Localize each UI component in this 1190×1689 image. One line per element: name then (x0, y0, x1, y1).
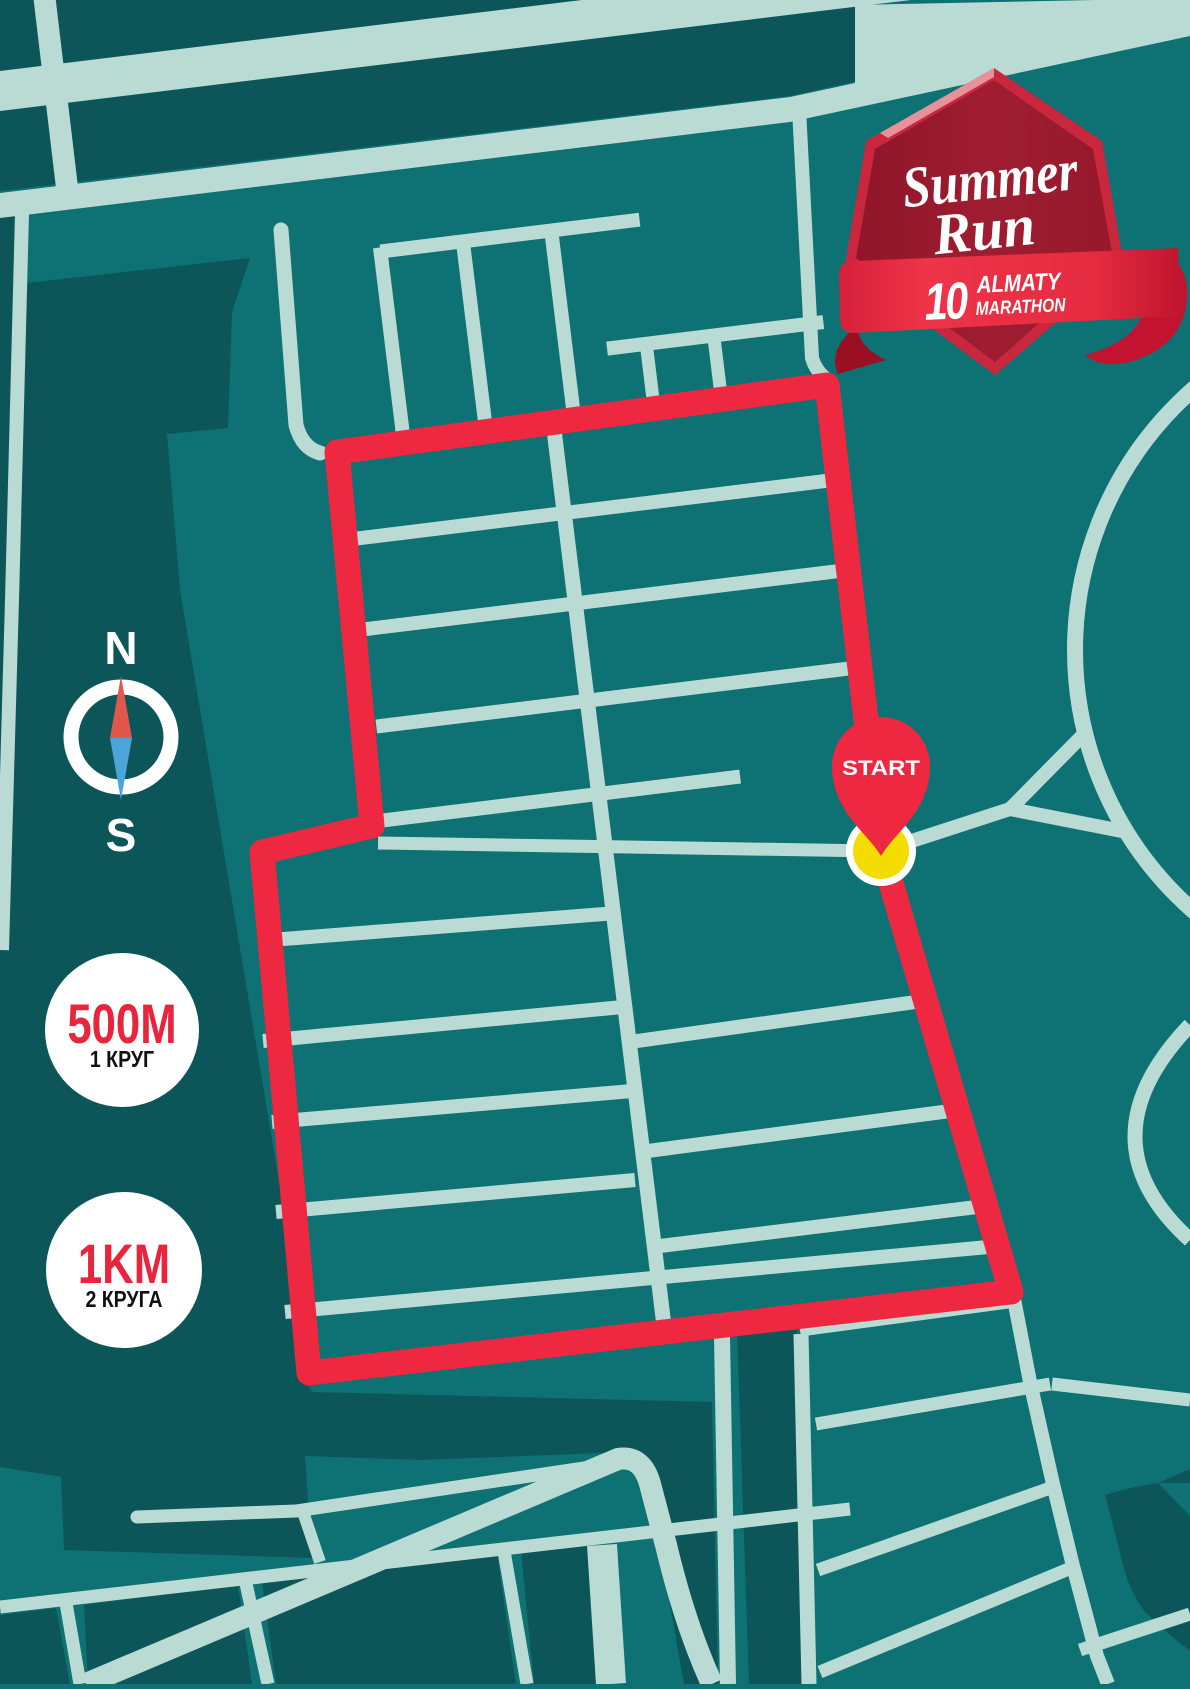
svg-text:START: START (842, 757, 920, 780)
svg-text:1 КРУГ: 1 КРУГ (90, 1047, 154, 1073)
svg-text:MARATHON: MARATHON (975, 295, 1067, 320)
svg-text:ALMATY: ALMATY (975, 268, 1063, 299)
svg-text:N: N (104, 622, 137, 674)
svg-text:2 КРУГА: 2 КРУГА (85, 1287, 162, 1313)
svg-text:S: S (106, 809, 137, 861)
svg-text:10: 10 (923, 271, 969, 331)
